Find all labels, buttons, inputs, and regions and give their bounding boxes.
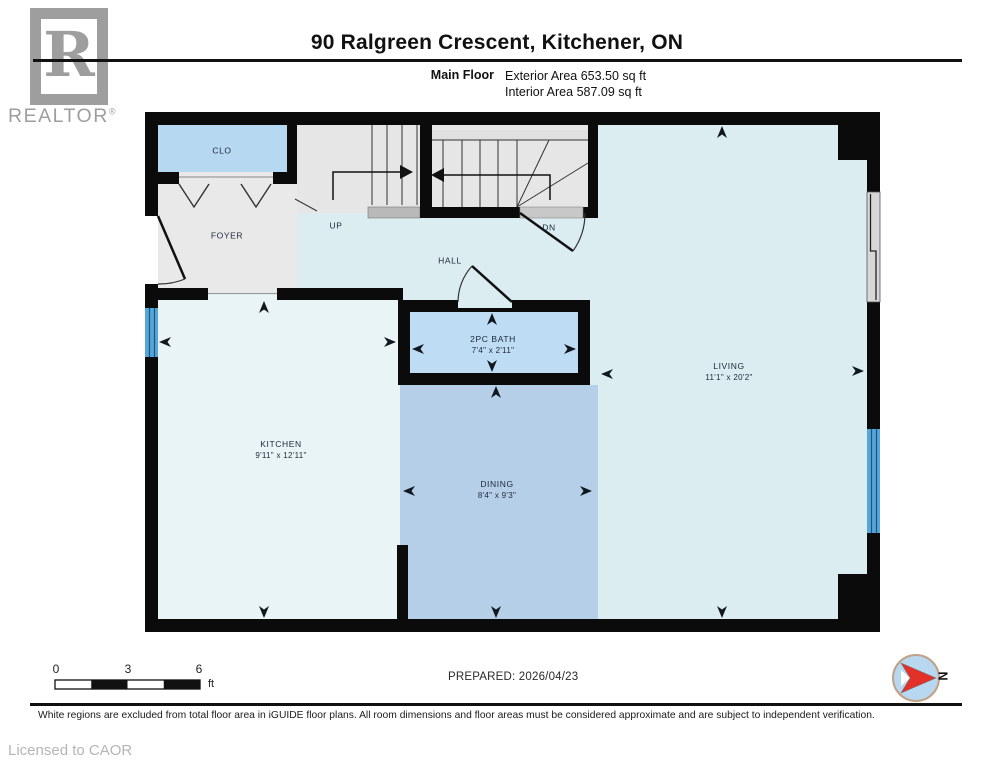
living-dimensions: 11'1" x 20'2" xyxy=(705,372,752,383)
scale-tick-3: 3 xyxy=(125,662,132,676)
kitchen-dimensions: 9'11" x 12'11" xyxy=(255,450,306,461)
realtor-logo-wordmark: REALTOR® xyxy=(8,105,117,128)
label-dn: DN xyxy=(542,223,555,234)
dining-area xyxy=(400,385,598,620)
wall-left-1 xyxy=(145,112,158,216)
scale-unit: ft xyxy=(208,678,214,690)
compass-north-label: N xyxy=(936,671,950,680)
realtor-logo: R xyxy=(30,8,108,105)
wall-left-3 xyxy=(145,357,158,632)
scale-bar-seg1 xyxy=(91,680,127,689)
kitchen-dining-wall-stub xyxy=(397,545,408,620)
wall-right-2 xyxy=(867,302,880,429)
scale-tick-6: 6 xyxy=(196,662,203,676)
dn-door-sill xyxy=(520,207,583,218)
closet-bottom-wall-2 xyxy=(273,172,297,184)
scale-tick-0: 0 xyxy=(53,662,60,676)
foyer-bottom-wall-1 xyxy=(145,288,208,300)
wall-top xyxy=(145,112,880,125)
foyer-bottom-wall-2 xyxy=(277,288,403,300)
sliding-door-frame xyxy=(867,192,880,302)
registered-mark: ® xyxy=(109,107,117,117)
living-window xyxy=(867,429,880,533)
stairs-dn-landing xyxy=(432,130,588,140)
label-kitchen: KITCHEN 9'11" x 12'11" xyxy=(255,439,306,461)
scale-bar-seg2 xyxy=(164,680,200,689)
bath-dimensions: 7'4" x 2'11" xyxy=(470,345,516,356)
wall-notch-topright xyxy=(838,112,880,160)
label-bath: 2PC BATH 7'4" x 2'11" xyxy=(470,334,516,356)
label-up: UP xyxy=(329,221,342,232)
stairwell-bottom-wall-1 xyxy=(420,207,520,218)
label-living: LIVING 11'1" x 20'2" xyxy=(705,361,752,383)
kitchen-window xyxy=(145,308,158,357)
bath-door-opening xyxy=(458,298,512,308)
scale-bar xyxy=(55,680,200,689)
label-foyer: FOYER xyxy=(211,231,243,242)
up-landing-sill xyxy=(368,207,420,218)
compass xyxy=(893,655,939,701)
closet-bottom-wall-1 xyxy=(158,172,179,184)
dining-dimensions: 8'4" x 9'3" xyxy=(478,490,516,501)
floorplan xyxy=(0,0,994,768)
header-divider xyxy=(33,59,962,62)
wall-bottom xyxy=(145,619,880,632)
label-closet: CLO xyxy=(212,146,231,157)
wall-notch-bottomright xyxy=(838,574,880,632)
label-hall: HALL xyxy=(438,256,462,267)
stairwell-right-wall xyxy=(588,112,598,218)
stair-divider-wall xyxy=(420,112,432,218)
label-dining: DINING 8'4" x 9'3" xyxy=(478,479,516,501)
sliding-door xyxy=(867,192,880,302)
realtor-logo-letter: R xyxy=(43,24,95,86)
